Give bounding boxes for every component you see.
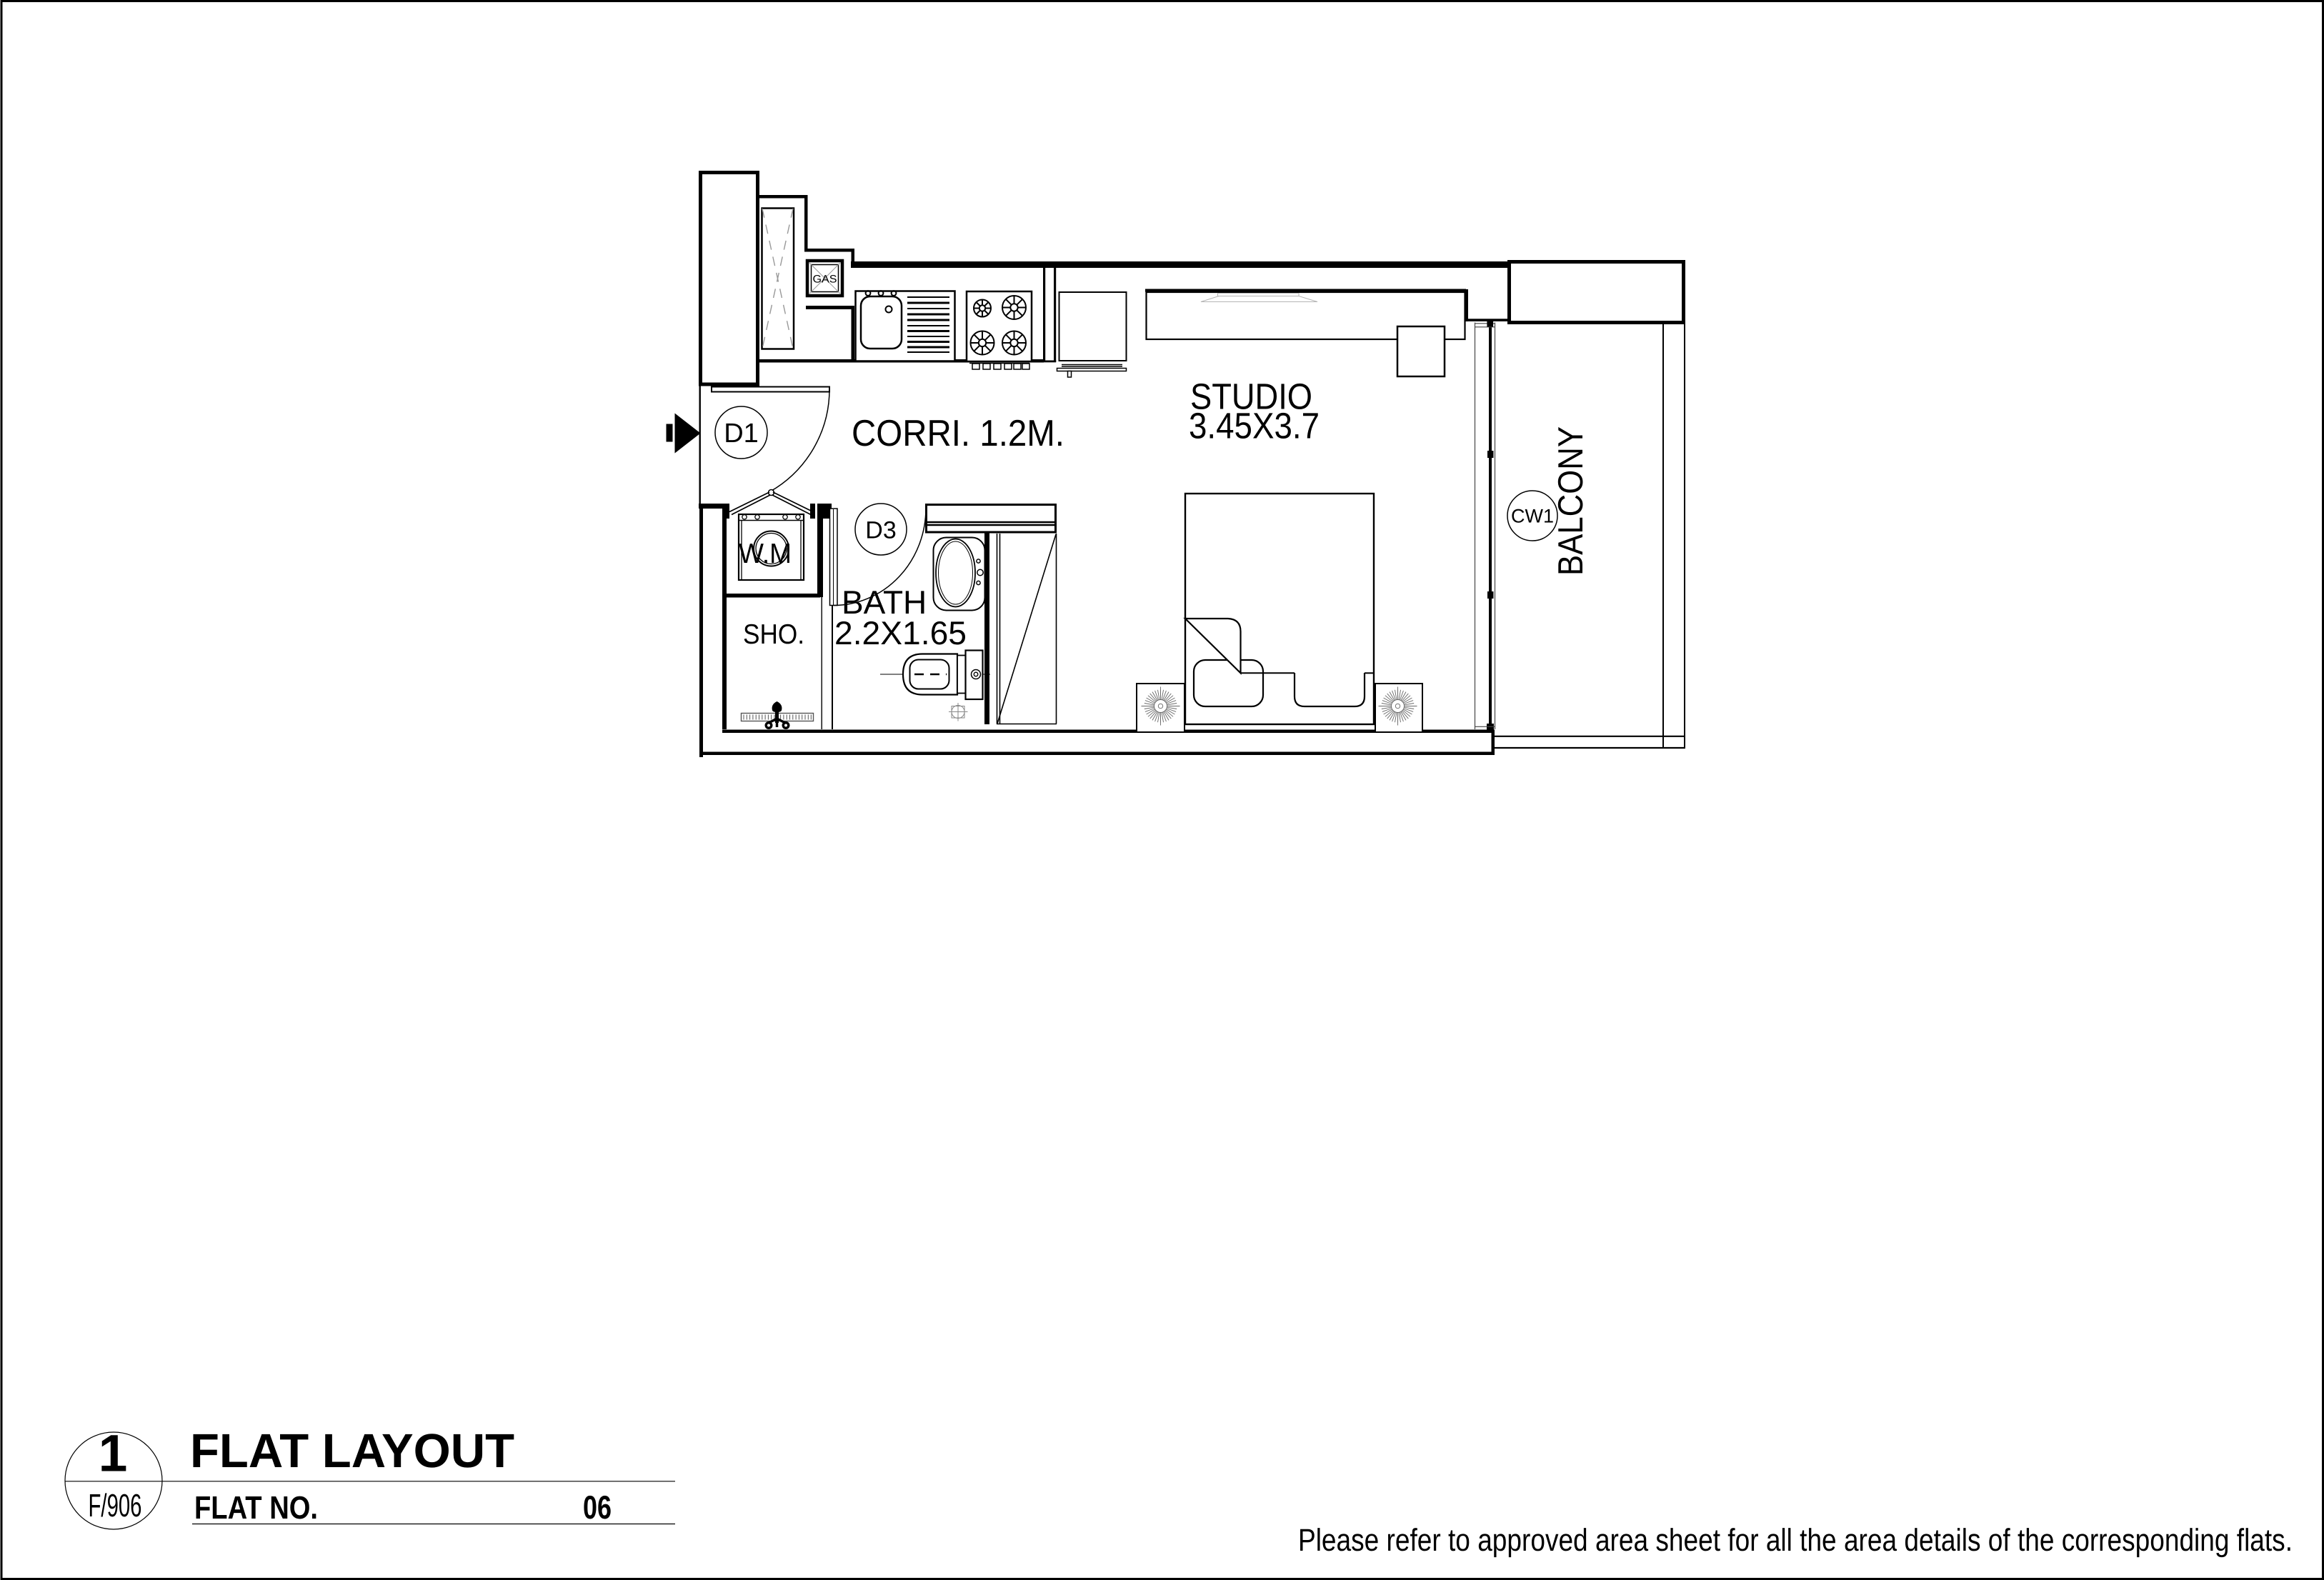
svg-text:1: 1 bbox=[99, 1425, 128, 1483]
svg-text:BALCONY: BALCONY bbox=[1552, 426, 1590, 576]
svg-text:Please refer to approved area: Please refer to approved area sheet for … bbox=[1298, 1523, 2293, 1558]
svg-text:CORRI. 1.2M.: CORRI. 1.2M. bbox=[852, 413, 1064, 454]
svg-text:FLAT NO.: FLAT NO. bbox=[194, 1489, 318, 1526]
svg-text:D3: D3 bbox=[865, 517, 896, 544]
svg-text:F/906: F/906 bbox=[89, 1487, 142, 1524]
svg-text:D1: D1 bbox=[724, 419, 759, 449]
svg-text:2.2X1.65: 2.2X1.65 bbox=[834, 614, 967, 651]
svg-text:SHO.: SHO. bbox=[743, 619, 804, 650]
svg-text:W.M: W.M bbox=[739, 539, 792, 569]
svg-text:3.45X3.7: 3.45X3.7 bbox=[1189, 406, 1320, 446]
svg-text:CW1: CW1 bbox=[1511, 506, 1554, 527]
svg-text:GAS: GAS bbox=[813, 274, 837, 286]
svg-text:FLAT LAYOUT: FLAT LAYOUT bbox=[190, 1424, 514, 1478]
svg-text:06: 06 bbox=[583, 1489, 612, 1526]
